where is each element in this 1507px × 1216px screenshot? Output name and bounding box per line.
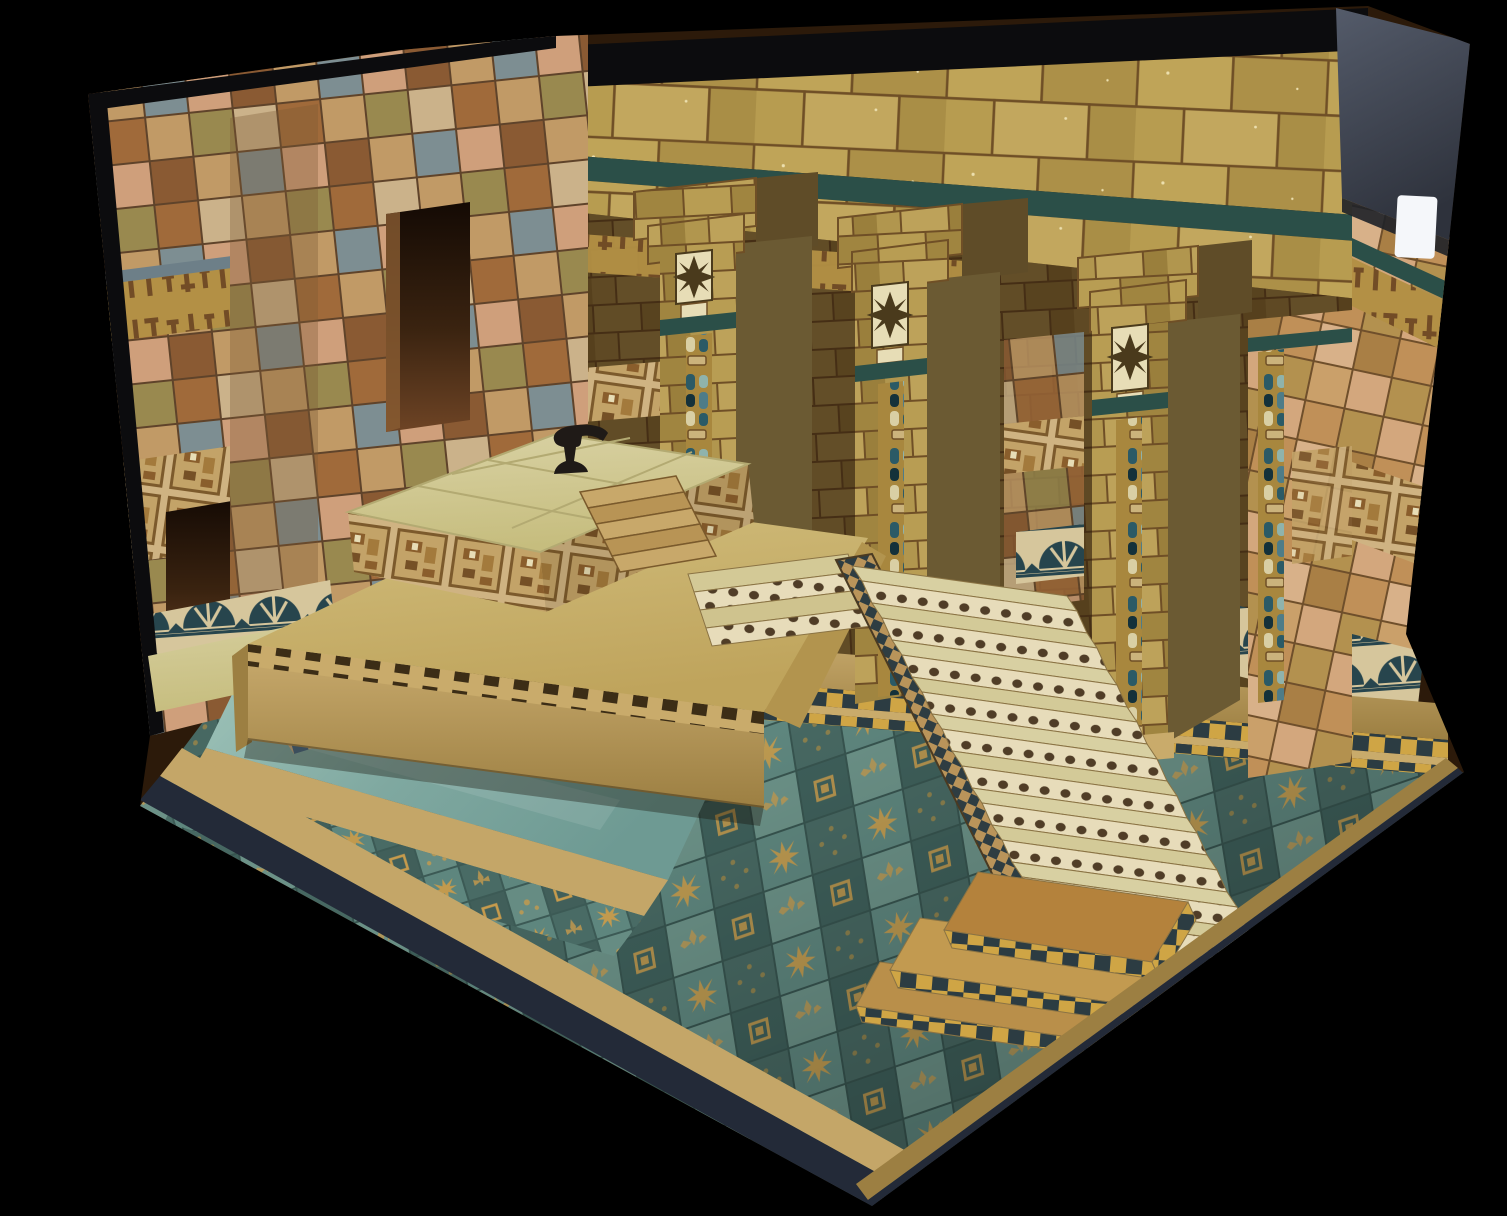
diorama-photo: [0, 0, 1507, 1216]
label-sticker: [1394, 195, 1437, 259]
mosaic-inlay-strip: [1258, 349, 1284, 703]
niche-jamb: [386, 212, 400, 432]
pillar-4-anta: [1248, 310, 1352, 778]
scene-canvas: [0, 0, 1507, 1216]
pillar-side: [1168, 314, 1240, 742]
pillar-capital-side: [1198, 240, 1252, 320]
pillar-capital-side: [962, 198, 1028, 280]
anta-relief-band: [1292, 446, 1352, 564]
inner-palmette-frieze: [1016, 524, 1084, 584]
inner-relief-frieze-right: [1004, 416, 1084, 474]
